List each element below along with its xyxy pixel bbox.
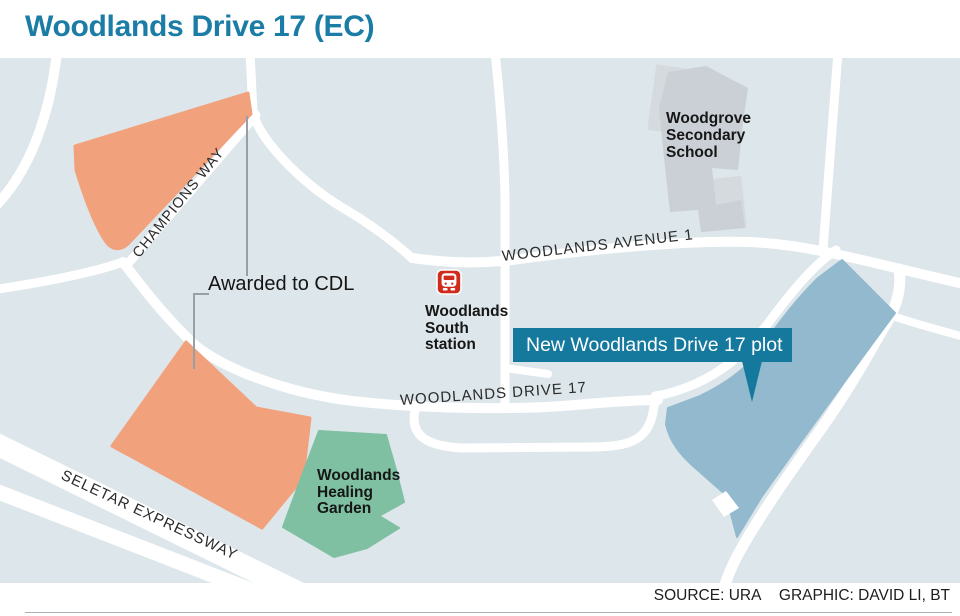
source-label: SOURCE: URA	[654, 587, 761, 604]
train-light-left	[445, 282, 447, 284]
callout-new-plot: New Woodlands Drive 17 plot	[513, 328, 792, 362]
bt-map-graphic: Woodlands Drive 17 (EC)	[0, 0, 960, 616]
train-light-right	[451, 282, 453, 284]
bottom-rule	[25, 612, 952, 613]
label-awarded-to-cdl: Awarded to CDL	[208, 273, 354, 296]
leader-line-south-vertical	[193, 293, 195, 369]
train-window	[444, 276, 455, 280]
label-woodlands-healing-garden: Woodlands Healing Garden	[317, 468, 400, 518]
label-woodgrove-secondary-school: Woodgrove Secondary School	[666, 110, 751, 161]
train-wheel-left	[443, 288, 448, 291]
page-title: Woodlands Drive 17 (EC)	[25, 10, 374, 44]
graphic-label: GRAPHIC: DAVID LI, BT	[779, 587, 950, 604]
mrt-station-icon	[436, 269, 462, 295]
leader-line-north	[246, 116, 248, 276]
leader-line-south-horizontal	[193, 293, 209, 295]
label-woodlands-south-station: Woodlands South station	[425, 304, 508, 354]
credit-line: SOURCE: URA GRAPHIC: DAVID LI, BT	[654, 587, 950, 605]
map-area: CHAMPIONS WAY WOODLANDS AVENUE 1 WOODLAN…	[0, 58, 960, 583]
train-wheel-right	[450, 288, 455, 291]
callout-pointer	[742, 361, 762, 402]
